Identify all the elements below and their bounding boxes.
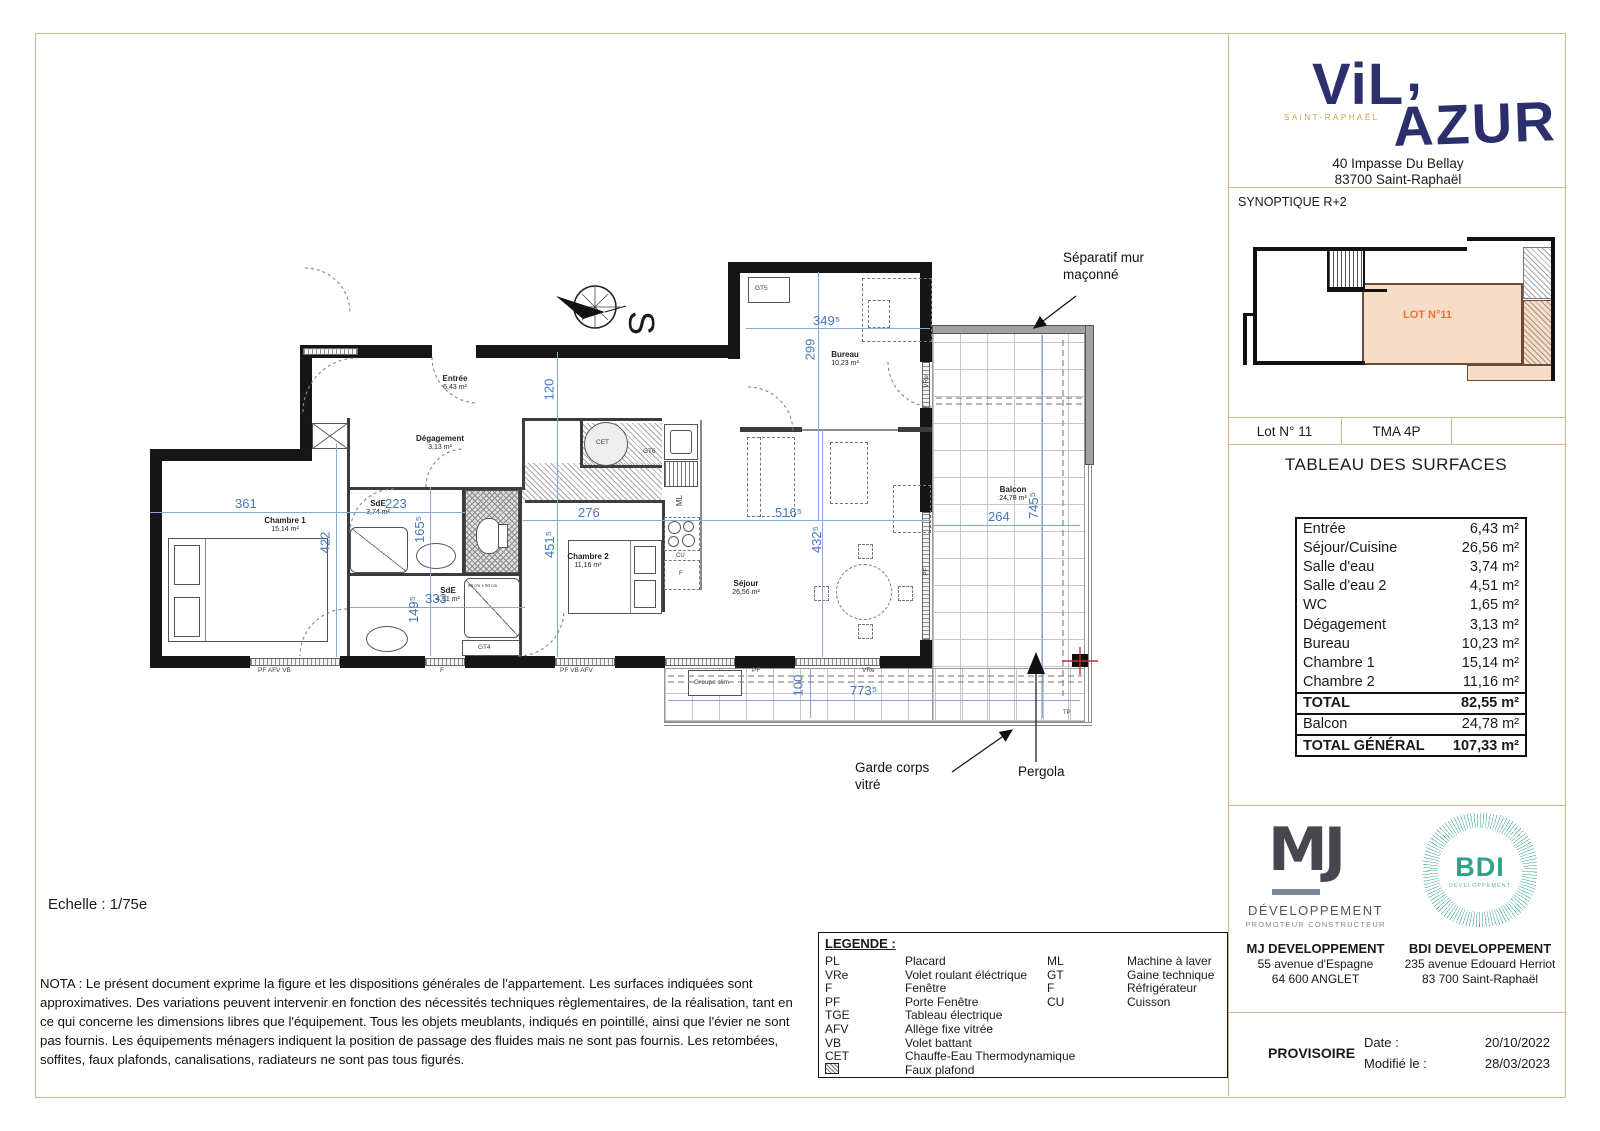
- brand-address-2: 83700 Saint-Raphaël: [1258, 172, 1538, 187]
- lot-empty-cell: [1452, 418, 1565, 444]
- lot-row: Lot N° 11 TMA 4P: [1228, 417, 1565, 445]
- table-row: Dégagement3,13 m²: [1297, 615, 1525, 634]
- north-letter: S: [621, 311, 662, 335]
- mj-block: MJ DÉVELOPPEMENT PROMOTEUR CONSTRUCTEUR …: [1238, 813, 1393, 1023]
- legend-box: LEGENDE : PLPlacard VReVolet roulant élé…: [818, 932, 1228, 1078]
- legend-right-column: MLMachine à laver GTGaine technique FRéf…: [1047, 955, 1227, 1009]
- lot-highlight-label: LOT N°11: [1403, 309, 1452, 321]
- surfaces-title: TABLEAU DES SURFACES: [1246, 455, 1546, 475]
- mj-addr1: 55 avenue d'Espagne: [1238, 957, 1393, 971]
- garde-corps-arrow: [952, 730, 1012, 772]
- bdi-name: BDI DEVELOPPEMENT: [1400, 941, 1560, 956]
- date-value: 20/10/2022: [1455, 1035, 1550, 1050]
- brand-subtitle: SAINT-RAPHAËL: [1284, 113, 1380, 122]
- bdi-block: BDI DÉVELOPPEMENT BDI DEVELOPPEMENT 235 …: [1400, 813, 1560, 1023]
- table-total-row: TOTAL82,55 m²: [1297, 692, 1525, 715]
- legend-title: LEGENDE :: [825, 936, 896, 951]
- status-label: PROVISOIRE: [1268, 1045, 1355, 1061]
- surfaces-table: Entrée6,43 m² Séjour/Cuisine26,56 m² Sal…: [1295, 517, 1527, 757]
- synoptique-plan: LOT N°11: [1228, 213, 1565, 417]
- date-label: Date :: [1364, 1035, 1399, 1050]
- mj-logo-underline: [1272, 889, 1320, 895]
- bdi-addr2: 83 700 Saint-Raphaël: [1400, 972, 1560, 986]
- mj-name: MJ DEVELOPPEMENT: [1238, 941, 1393, 956]
- table-row: Chambre 211,16 m²: [1297, 673, 1525, 692]
- placard-x: [312, 423, 348, 449]
- mj-logo-icon: MJ: [1268, 815, 1342, 885]
- pergola-dashed-lines: [668, 340, 1082, 700]
- faux-plafond-swatch: [825, 1063, 839, 1074]
- lot-number-cell: Lot N° 11: [1228, 418, 1342, 444]
- table-row: Chambre 115,14 m²: [1297, 653, 1525, 672]
- table-row: Bureau10,23 m²: [1297, 634, 1525, 653]
- lot-highlight-area: [1362, 283, 1523, 365]
- table-row: Entrée6,43 m²: [1297, 519, 1525, 538]
- survey-marker-cross: [1062, 647, 1098, 675]
- table-balcon-row: Balcon24,78 m²: [1297, 715, 1525, 734]
- brand-logo: ViL: [1312, 51, 1404, 118]
- modified-value: 28/03/2023: [1455, 1056, 1550, 1071]
- modified-label: Modifié le :: [1364, 1056, 1427, 1071]
- bdi-addr1: 235 avenue Edouard Herriot: [1400, 957, 1560, 971]
- lot-type-cell: TMA 4P: [1342, 418, 1452, 444]
- nota-text: NOTA : Le présent document exprime la fi…: [40, 974, 797, 1069]
- table-row: WC1,65 m²: [1297, 596, 1525, 615]
- separatif-arrow: [1034, 296, 1076, 328]
- title-block: ViL ’ AZUR SAINT-RAPHAËL 40 Impasse Du B…: [1228, 33, 1565, 1097]
- synoptique-title: SYNOPTIQUE R+2: [1238, 195, 1347, 209]
- north-compass-icon: [556, 285, 626, 329]
- door-swing-arcs: [300, 268, 933, 656]
- brand-address-1: 40 Impasse Du Bellay: [1258, 156, 1538, 171]
- table-row: Séjour/Cuisine26,56 m²: [1297, 538, 1525, 557]
- table-row: Salle d'eau 24,51 m²: [1297, 577, 1525, 596]
- stairwell: [1327, 249, 1365, 289]
- table-total-general-row: TOTAL GÉNÉRAL107,33 m²: [1297, 734, 1525, 755]
- mj-addr2: 64 600 ANGLET: [1238, 972, 1393, 986]
- brand-logo-2: AZUR: [1392, 88, 1558, 159]
- scale-label: Echelle : 1/75e: [48, 896, 147, 913]
- bdi-logo-icon: BDI DÉVELOPPEMENT: [1423, 813, 1537, 927]
- table-row: Salle d'eau3,74 m²: [1297, 557, 1525, 576]
- pergola-arrow-head: [1027, 652, 1045, 674]
